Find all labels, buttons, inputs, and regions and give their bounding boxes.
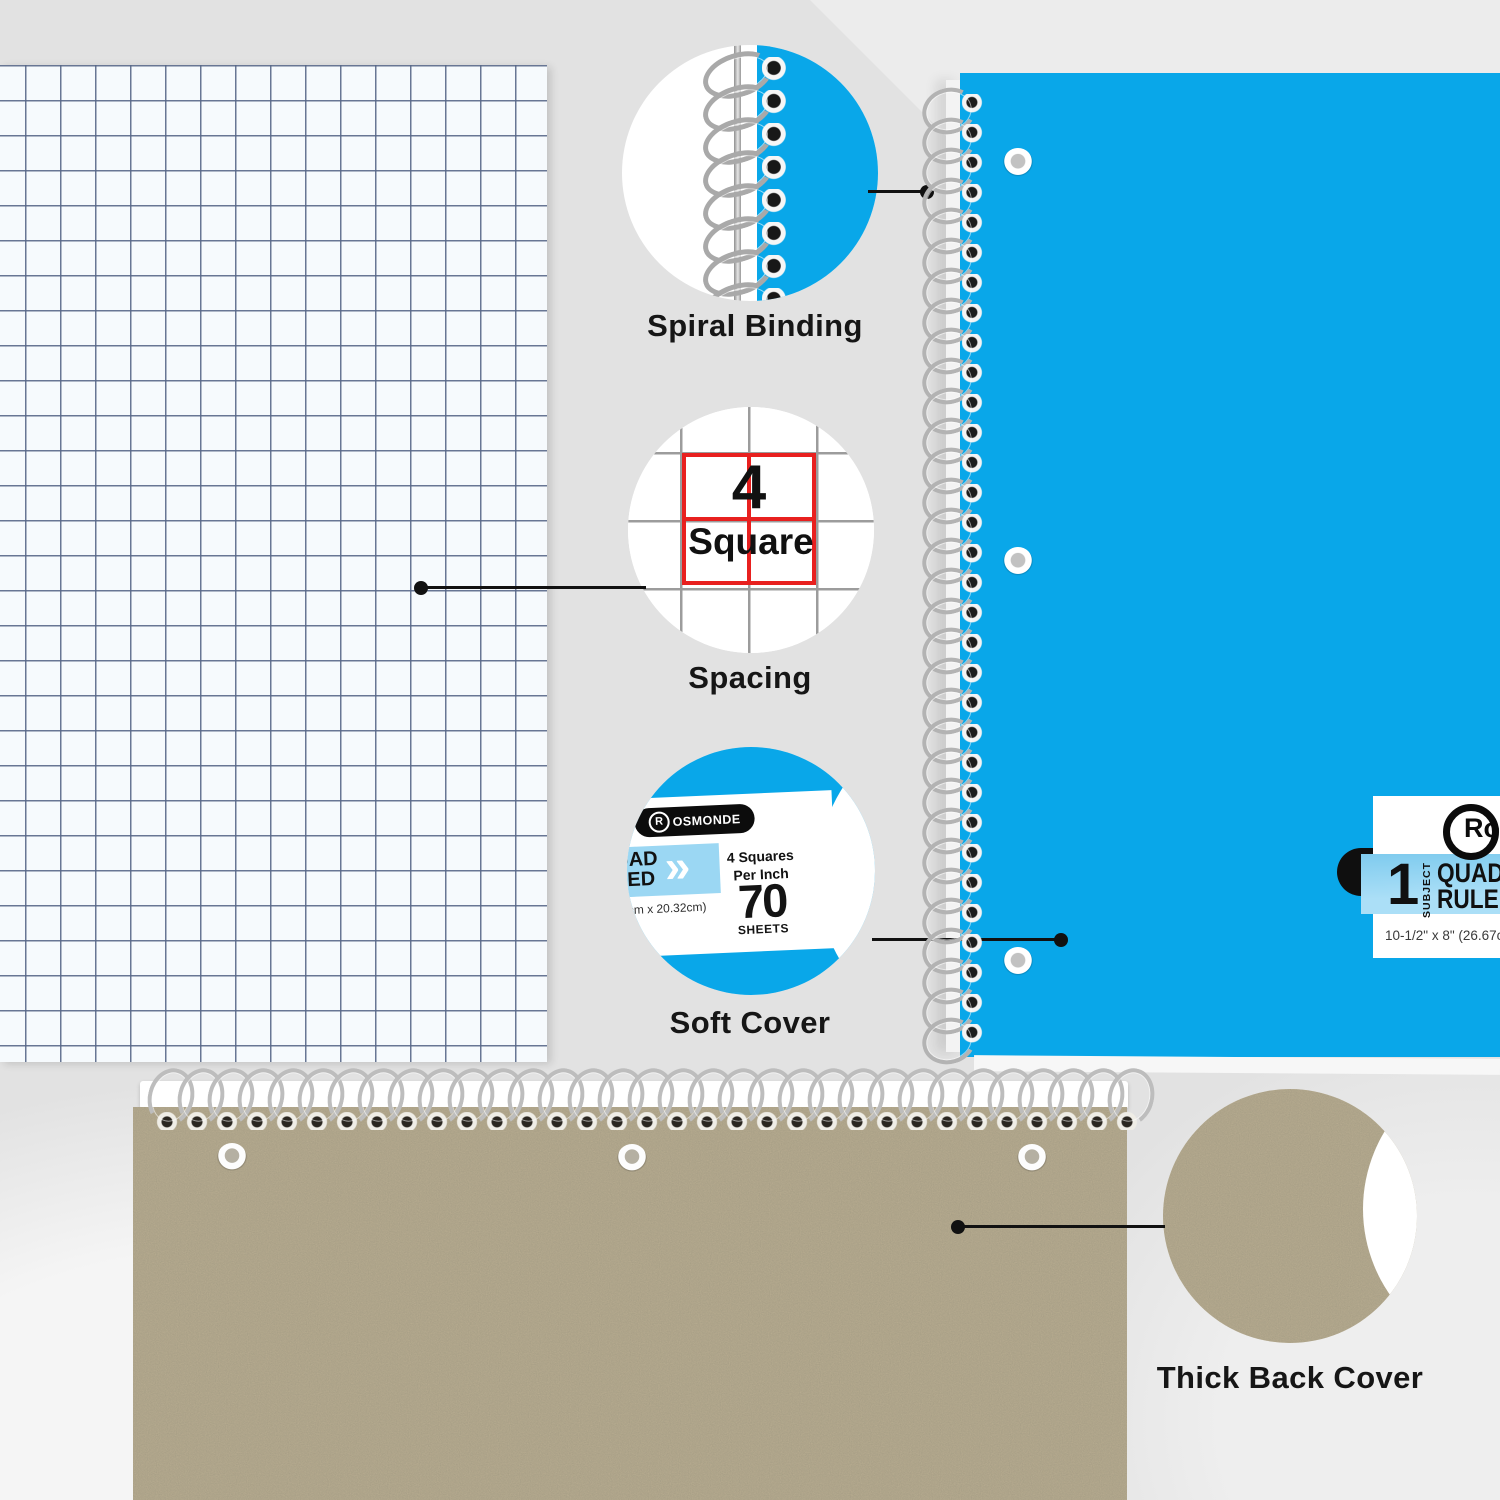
size-fragment: 67cm x 20.32cm) xyxy=(627,900,707,918)
binder-hole xyxy=(1017,1144,1047,1174)
sheet-count: 70 xyxy=(721,876,803,926)
callout-dot xyxy=(951,1220,965,1234)
brand-logo-pill: R OSMONDE xyxy=(634,803,755,837)
callout-line xyxy=(868,190,928,193)
brand-name-fragment: Ros xyxy=(1464,813,1500,844)
binder-hole xyxy=(1003,148,1033,178)
size-text: 10-1/2" x 8" (26.67cm x 2 xyxy=(1385,928,1500,943)
chevron-right-icon: » xyxy=(663,838,691,893)
binder-hole xyxy=(617,1144,647,1174)
four-square-number: 4 xyxy=(682,457,816,519)
callout-line xyxy=(957,1225,1165,1228)
callout-line xyxy=(420,586,646,589)
ruling-fragment-line2: LED xyxy=(627,867,656,891)
callout-label-thick-back-cover: Thick Back Cover xyxy=(1140,1360,1440,1396)
callout-dot xyxy=(1054,933,1068,947)
callout-label-spiral-binding: Spiral Binding xyxy=(620,308,890,344)
callout-circle-soft-cover: R OSMONDE UAD LED » 4 Squares Per Inch 7… xyxy=(627,747,875,995)
sheet-word: SHEETS xyxy=(723,920,804,937)
zoom-product-label: R OSMONDE UAD LED » 4 Squares Per Inch 7… xyxy=(627,790,838,958)
four-square-word: Square xyxy=(668,523,834,560)
product-label: Ros 1 SUBJECT QUAD RULED 10-1/2" x 8" (2… xyxy=(1337,788,1500,968)
subject-word: SUBJECT xyxy=(1421,862,1433,918)
callout-label-spacing: Spacing xyxy=(630,660,870,696)
ruling-line2: RULED xyxy=(1437,884,1500,914)
callout-label-soft-cover: Soft Cover xyxy=(620,1005,880,1041)
ruling-fragment: UAD LED xyxy=(627,850,659,891)
product-feature-diagram: Ros 1 SUBJECT QUAD RULED 10-1/2" x 8" (2… xyxy=(0,0,1500,1500)
brand-name-rest: OSMONDE xyxy=(672,812,741,829)
binder-hole xyxy=(1003,947,1033,977)
callout-circle-spiral-binding xyxy=(622,45,878,301)
callout-circle-spacing: 4 Square xyxy=(628,407,874,653)
squares-line1: 4 Squares xyxy=(726,847,794,866)
quad-ruled-paper-sheet xyxy=(0,65,547,1062)
callout-circle-thick-back-cover xyxy=(1163,1089,1417,1343)
brand-r-ring-icon: R xyxy=(648,811,670,833)
subject-count: 1 xyxy=(1387,858,1419,911)
binder-hole xyxy=(1003,547,1033,577)
label-ribbon-band: UAD LED » xyxy=(627,843,721,898)
binder-hole xyxy=(217,1143,247,1173)
ruling-type: QUAD RULED xyxy=(1437,861,1500,912)
callout-dot xyxy=(414,581,428,595)
